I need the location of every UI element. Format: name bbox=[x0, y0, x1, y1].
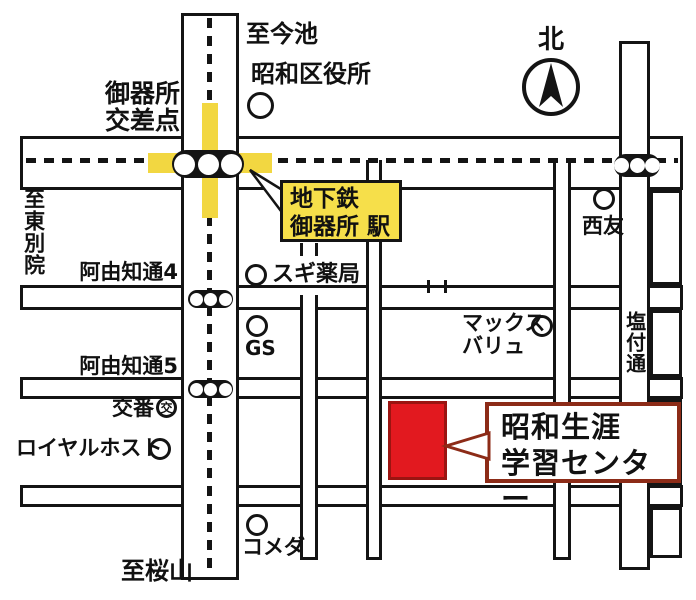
label-to-imaike: 至今池 bbox=[246, 22, 318, 48]
compass-circle bbox=[524, 60, 578, 114]
subway-exit-tick bbox=[444, 280, 447, 293]
landmark-circle-sugi bbox=[245, 264, 267, 286]
destination-marker bbox=[388, 401, 447, 480]
city-block bbox=[650, 310, 682, 377]
label-sugi-pharmacy: スギ薬局 bbox=[272, 263, 360, 287]
label-shiotsuke: 塩付通 bbox=[623, 311, 645, 374]
label-ayuchi4: 阿由知通4 bbox=[40, 261, 178, 284]
label-ayuchi5: 阿由知通5 bbox=[40, 355, 178, 378]
label-komeda: コメダ bbox=[242, 536, 305, 559]
station-label-line1: 地下鉄 bbox=[290, 185, 399, 213]
traffic-signal-icon bbox=[188, 290, 233, 308]
access-map: 交 昭和生涯 学習センター 地下鉄 御器所 駅 至今池 昭和区役所 御器所 交差… bbox=[0, 0, 696, 600]
destination-name-line2: 学習センター bbox=[501, 445, 677, 517]
label-to-sakurayama: 至桜山 bbox=[121, 559, 193, 585]
label-koban: 交番 bbox=[112, 397, 154, 420]
label-gs: GS bbox=[245, 338, 276, 360]
destination-name-line1: 昭和生涯 bbox=[501, 409, 677, 445]
label-ward-office: 昭和区役所 bbox=[251, 62, 371, 88]
label-gokiso-intersection: 御器所 交差点 bbox=[55, 80, 180, 134]
traffic-signal-icon bbox=[614, 154, 660, 177]
label-maxvalu: マックス バリュ bbox=[462, 312, 545, 357]
destination-callout-pointer bbox=[446, 433, 489, 459]
city-block bbox=[650, 190, 682, 285]
subway-exit-tick bbox=[315, 243, 318, 256]
traffic-signal-icon bbox=[188, 380, 233, 398]
label-seiyu: 西友 bbox=[582, 215, 624, 238]
station-signal-icon bbox=[172, 150, 244, 178]
subway-exit-tick bbox=[300, 243, 303, 256]
subway-exit-tick bbox=[427, 280, 430, 293]
landmark-circle-ward-office bbox=[247, 92, 274, 119]
koban-circle-icon: 交 bbox=[156, 397, 177, 418]
road-ayuchi4 bbox=[20, 285, 683, 310]
label-royal-host: ロイヤルホスト bbox=[16, 437, 162, 460]
centerline-main-ew bbox=[26, 158, 678, 163]
station-label-line2: 御器所 駅 bbox=[290, 213, 399, 241]
landmark-circle-komeda bbox=[246, 514, 268, 536]
station-label-box: 地下鉄 御器所 駅 bbox=[280, 180, 402, 242]
label-north: 北 bbox=[524, 26, 578, 54]
destination-callout: 昭和生涯 学習センター bbox=[485, 402, 681, 483]
road-side-west bbox=[300, 295, 318, 560]
koban-symbol: 交 bbox=[160, 402, 172, 414]
north-arrow-icon bbox=[539, 63, 563, 107]
landmark-circle-gs bbox=[246, 315, 268, 337]
landmark-circle-seiyu bbox=[593, 188, 615, 210]
